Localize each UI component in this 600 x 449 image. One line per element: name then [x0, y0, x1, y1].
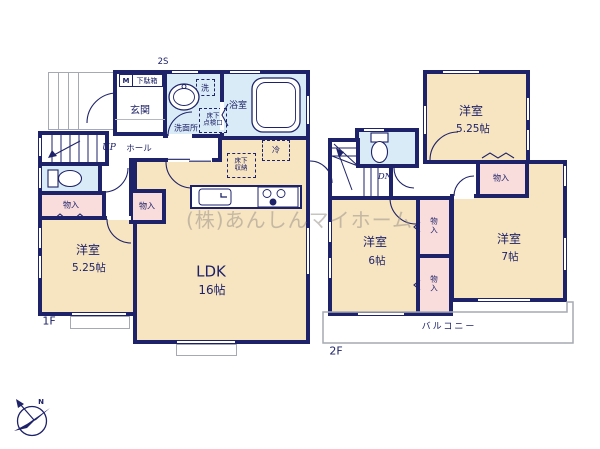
- watermark: (株)あんしんマイホーム: [186, 204, 413, 233]
- ldk-size: 16帖: [198, 284, 225, 298]
- closet-2f-hall-label: 物入: [493, 173, 509, 182]
- room-bedroom-2f-c-ext: [525, 160, 567, 198]
- stairs-up-label: UP: [102, 143, 116, 153]
- window: [72, 312, 126, 316]
- underfloor-storage-label: 床下 収納: [235, 158, 248, 173]
- stairs-down-label: DN: [378, 173, 392, 183]
- window: [328, 258, 332, 278]
- wall-corridor-east: [129, 162, 133, 193]
- window: [306, 96, 310, 124]
- room-ldk: [133, 136, 310, 344]
- window: [364, 128, 384, 132]
- porch-step-line: [58, 73, 59, 129]
- entrance-label: 玄関: [130, 105, 150, 117]
- washroom-label: 洗面所: [174, 123, 198, 132]
- meter-label: M: [123, 77, 130, 85]
- bedroom-2f-c-label: 洋室: [497, 233, 521, 247]
- laundry-label: 洗: [201, 83, 209, 92]
- window: [526, 98, 530, 120]
- closet-2f-c-label: 物 入: [430, 275, 438, 292]
- room-join-patch: [529, 194, 563, 199]
- window: [172, 70, 198, 74]
- window: [38, 168, 42, 188]
- door-gap: [454, 194, 474, 199]
- bedroom-2f-b-label: 洋室: [363, 236, 387, 250]
- ldk-label: LDK: [196, 263, 226, 280]
- room-bedroom-2f-c: [450, 194, 567, 302]
- fridge-label: 冷: [272, 145, 280, 154]
- annotation-2s: 2S: [158, 58, 169, 68]
- floor2-label: 2F: [329, 346, 342, 359]
- porch-step-line: [78, 73, 79, 129]
- window: [478, 298, 530, 302]
- terrace-step-ldk: [176, 344, 237, 356]
- window: [38, 138, 42, 156]
- window: [563, 166, 567, 186]
- door-gap: [168, 134, 192, 138]
- window: [526, 130, 530, 150]
- door-gap: [107, 216, 131, 220]
- window: [563, 238, 567, 270]
- bedroom-2f-b-size: 6帖: [368, 255, 385, 267]
- bedroom-1f-label: 洋室: [76, 244, 100, 258]
- window: [443, 70, 479, 74]
- window: [306, 228, 310, 274]
- bathroom-label: 浴室: [229, 101, 247, 111]
- stairs-1f-room: [38, 131, 109, 166]
- north-label: N: [38, 398, 44, 406]
- hall-label: ホール: [126, 145, 152, 155]
- window: [423, 106, 427, 134]
- floor-plan: M 下駄箱 玄関 洗面所 洗 浴室 床下 点検口 冷 床下 収納 UP ホール …: [0, 0, 600, 449]
- door-gap: [168, 158, 212, 162]
- underfloor-access-label: 床下 点検口: [203, 113, 223, 128]
- window: [38, 228, 42, 248]
- closet-1f-b-label: 物入: [139, 201, 155, 210]
- north-arrow-icon: [14, 399, 50, 436]
- porch-step-line: [68, 73, 69, 129]
- window: [38, 256, 42, 278]
- balcony-label: バルコニー: [422, 322, 477, 332]
- window: [177, 340, 235, 344]
- bedroom-1f-size: 5.25帖: [72, 262, 106, 274]
- bedroom-2f-c-size: 7帖: [501, 251, 518, 263]
- entrance-step-line: [115, 119, 165, 120]
- terrace-step-bedroom: [70, 316, 130, 329]
- bedroom-2f-a-label: 洋室: [459, 105, 483, 119]
- door-arc-rear: [310, 161, 332, 183]
- floor1-label: 1F: [42, 316, 55, 329]
- closet-1f-a-label: 物入: [63, 200, 79, 209]
- room-toilet-2f: [355, 128, 419, 168]
- window: [230, 70, 260, 74]
- closet-2f-b-label: 物 入: [430, 217, 438, 234]
- bedroom-2f-a-size: 5.25帖: [456, 123, 490, 135]
- window: [358, 312, 404, 316]
- shoe-cabinet-label: 下駄箱: [137, 77, 158, 85]
